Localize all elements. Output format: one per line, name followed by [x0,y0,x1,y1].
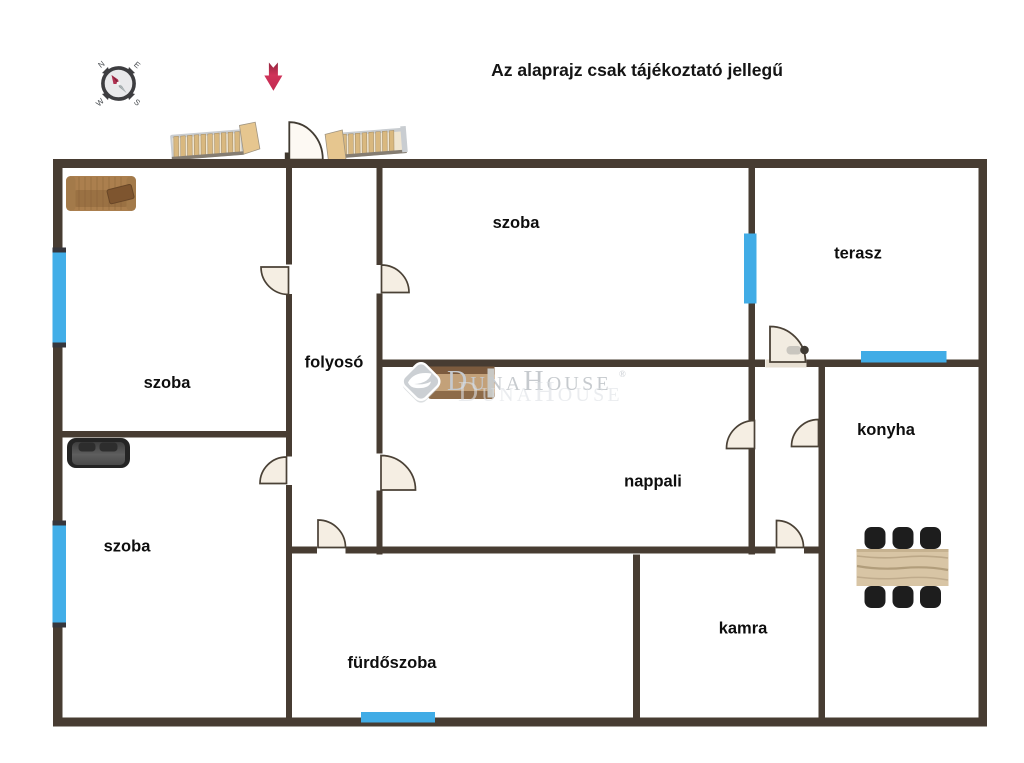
svg-text:S: S [132,97,142,107]
svg-text:folyosó: folyosó [305,354,364,372]
svg-text:szoba: szoba [144,374,192,392]
svg-text:W: W [94,96,106,108]
svg-text:®: ® [619,369,626,379]
svg-text:nappali: nappali [624,473,682,491]
svg-text:fürdőszoba: fürdőszoba [348,654,438,672]
svg-text:terasz: terasz [834,245,882,263]
svg-text:Az alaprajz csak tájékoztató j: Az alaprajz csak tájékoztató jellegű [491,60,783,80]
svg-text:szoba: szoba [493,214,541,232]
svg-text:szoba: szoba [104,538,152,556]
svg-text:kamra: kamra [719,620,768,638]
svg-text:konyha: konyha [857,421,916,439]
svg-text:N: N [96,59,106,70]
svg-text:E: E [132,60,142,70]
